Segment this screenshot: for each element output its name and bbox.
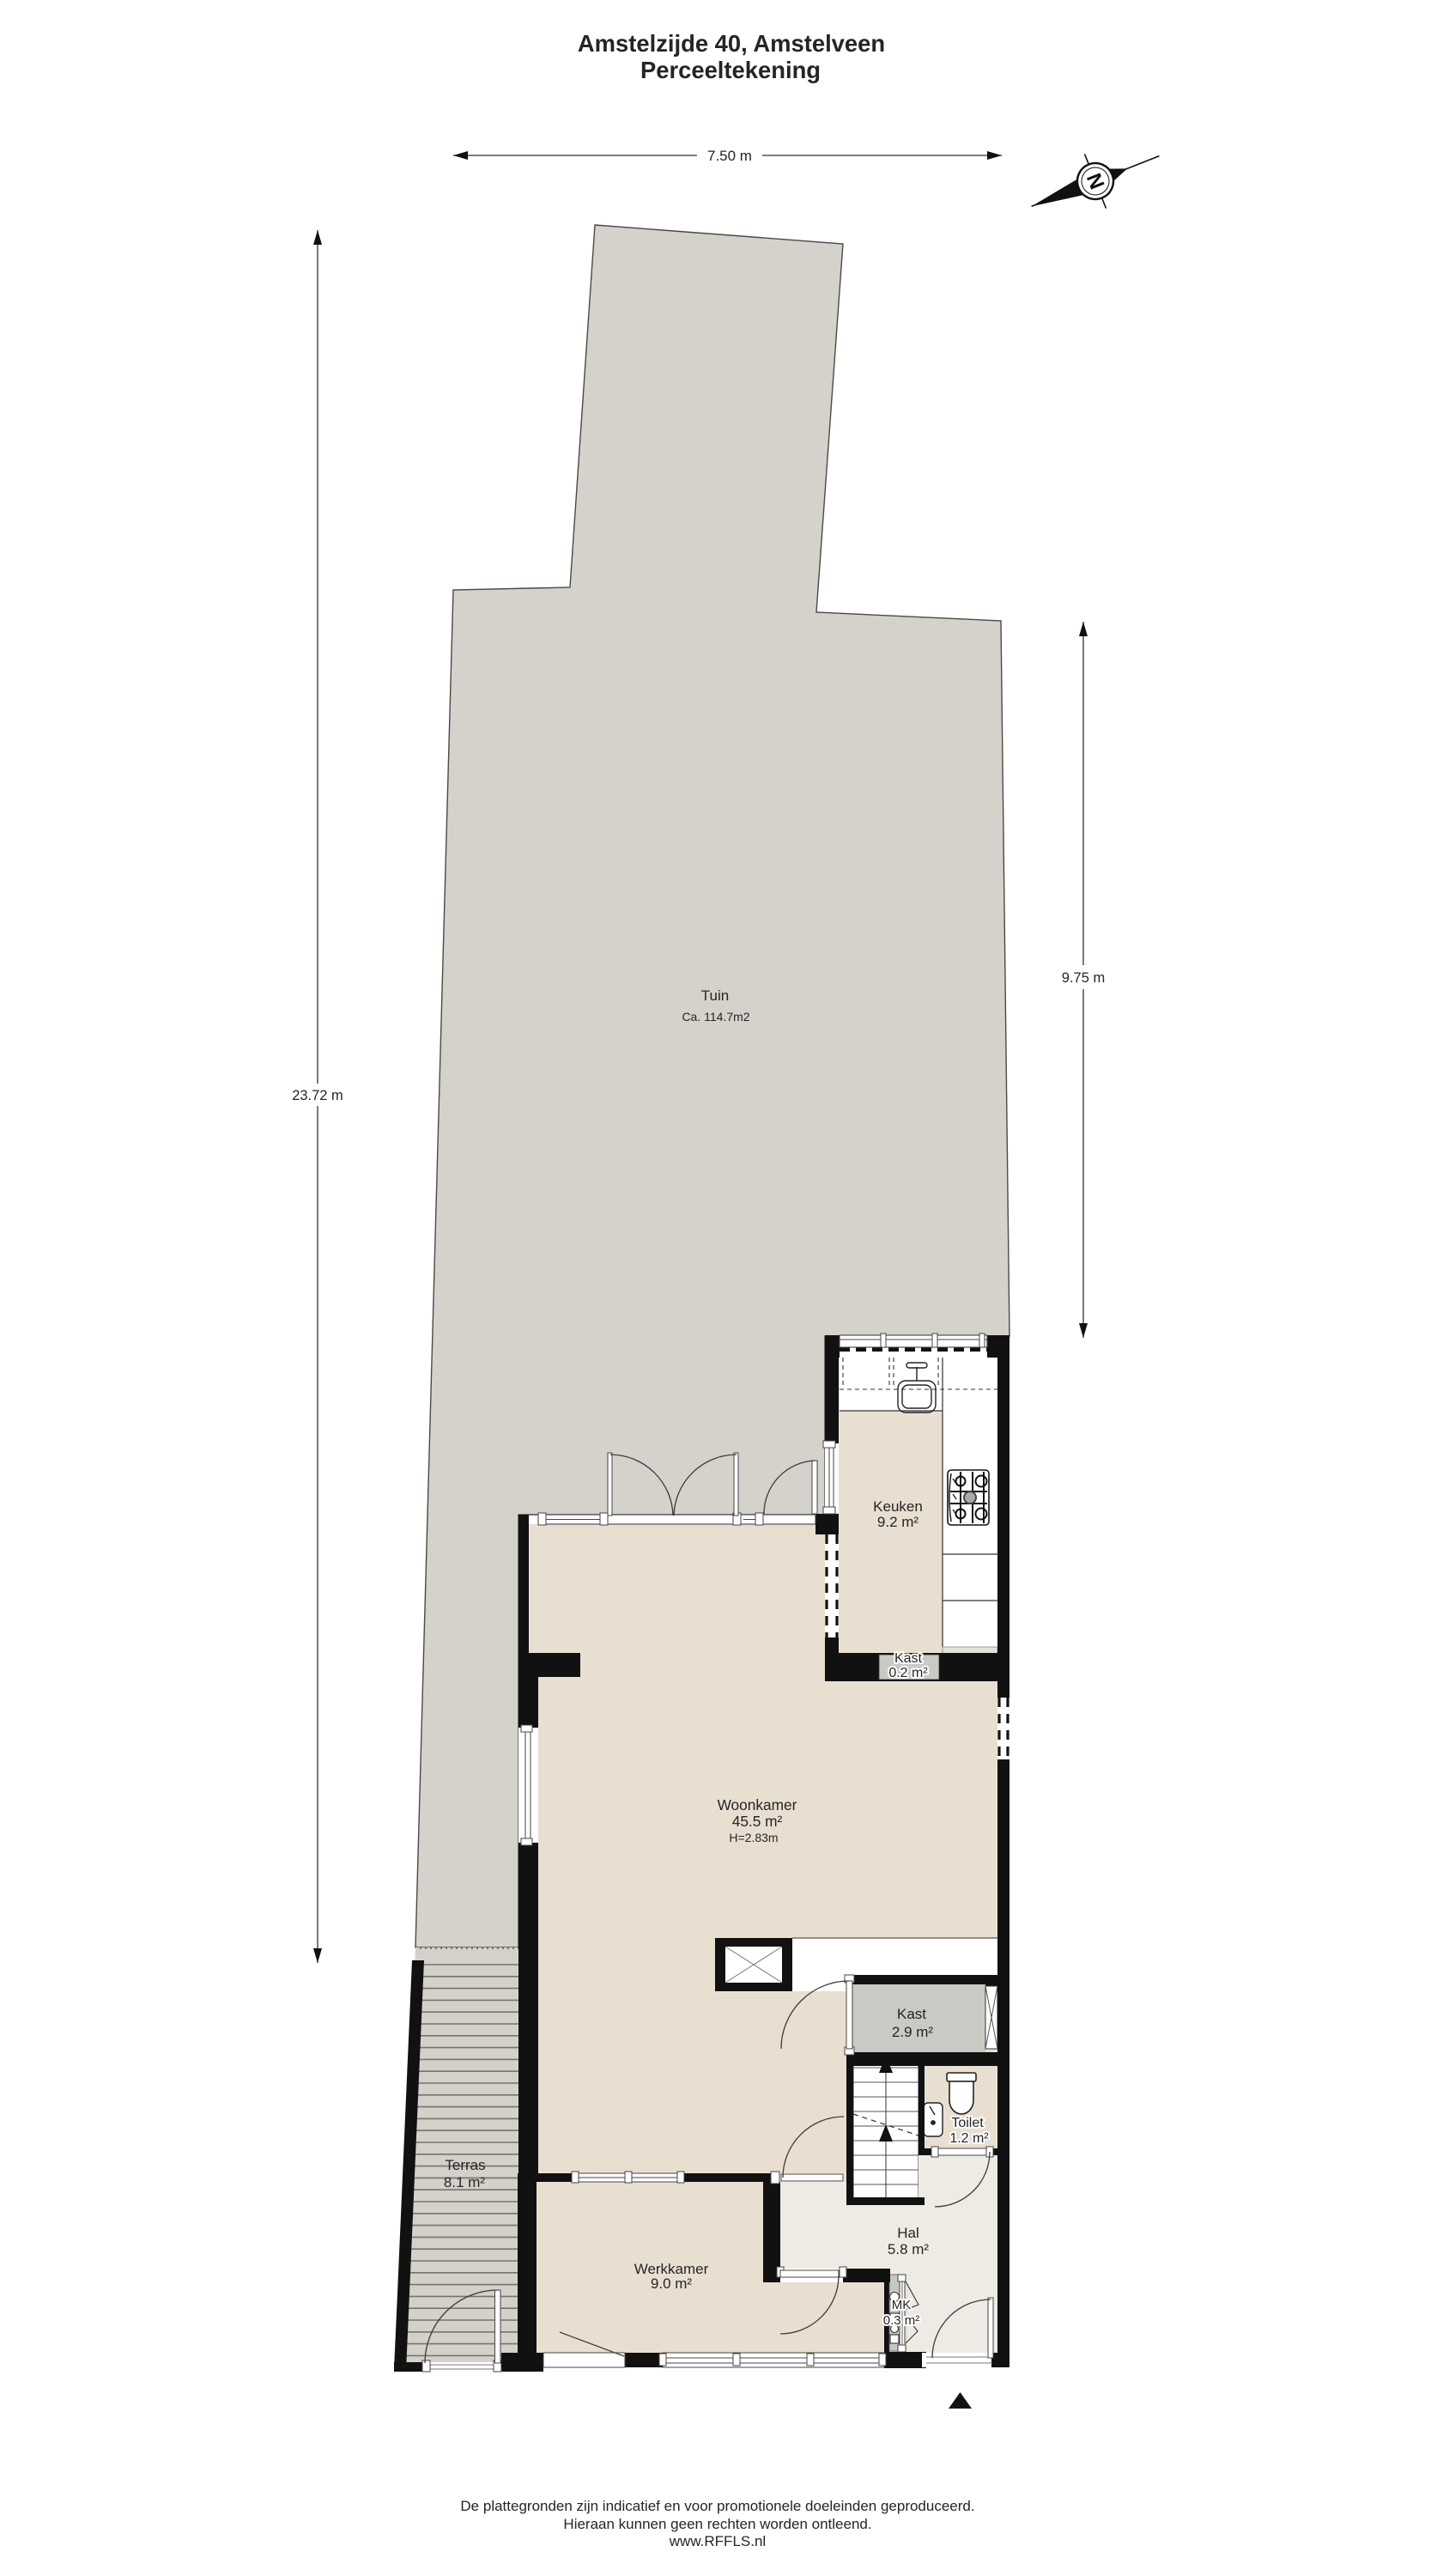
svg-text:Terras: Terras (445, 2157, 485, 2173)
svg-text:Perceeltekening: Perceeltekening (640, 57, 821, 83)
svg-text:23.72 m: 23.72 m (292, 1088, 343, 1103)
svg-text:Keuken: Keuken (873, 1498, 923, 1515)
svg-text:De plattegronden zijn indicati: De plattegronden zijn indicatief en voor… (460, 2498, 974, 2514)
svg-text:Amstelzijde 40, Amstelveen: Amstelzijde 40, Amstelveen (578, 30, 885, 57)
svg-text:2.9 m²: 2.9 m² (892, 2024, 934, 2040)
svg-text:Hieraan kunnen geen rechten wo: Hieraan kunnen geen rechten worden ontle… (563, 2516, 871, 2532)
svg-text:Kast: Kast (894, 1651, 923, 1666)
svg-text:Toilet: Toilet (951, 2116, 984, 2130)
svg-text:Woonkamer: Woonkamer (718, 1796, 797, 1814)
svg-text:Tuin: Tuin (701, 987, 729, 1004)
svg-text:9.0 m²: 9.0 m² (651, 2275, 693, 2292)
svg-text:9.2 m²: 9.2 m² (877, 1514, 919, 1530)
svg-text:MK: MK (892, 2298, 912, 2312)
svg-text:45.5 m²: 45.5 m² (732, 1813, 783, 1830)
svg-text:Hal: Hal (897, 2225, 919, 2241)
svg-text:Ca. 114.7m2: Ca. 114.7m2 (682, 1010, 749, 1024)
svg-text:Kast: Kast (897, 2006, 926, 2022)
svg-text:8.1 m²: 8.1 m² (444, 2174, 486, 2190)
svg-text:9.75 m: 9.75 m (1062, 970, 1105, 986)
svg-text:H=2.83m: H=2.83m (729, 1831, 778, 1844)
svg-text:www.RFFLS.nl: www.RFFLS.nl (669, 2533, 766, 2549)
svg-text:5.8 m²: 5.8 m² (888, 2241, 930, 2257)
svg-text:0.2 m²: 0.2 m² (888, 1666, 928, 1680)
svg-text:1.2 m²: 1.2 m² (949, 2131, 989, 2146)
svg-text:7.50 m: 7.50 m (707, 148, 752, 164)
svg-text:0.3 m²: 0.3 m² (883, 2313, 920, 2328)
